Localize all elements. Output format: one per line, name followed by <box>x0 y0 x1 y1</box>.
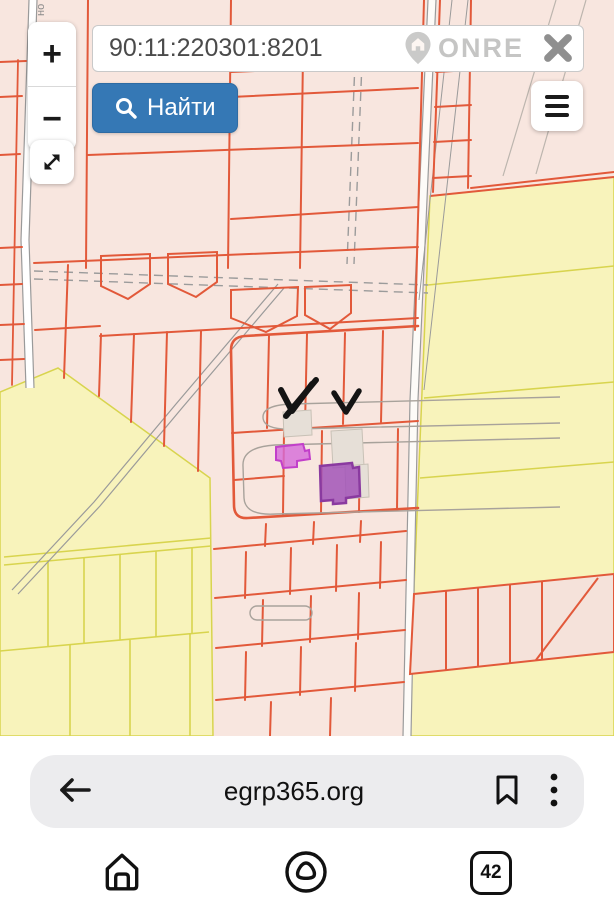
home-button[interactable] <box>102 851 142 896</box>
cadastral-search-input[interactable] <box>92 25 584 72</box>
street-label: но <box>35 4 47 16</box>
close-icon <box>542 29 574 67</box>
back-arrow-icon <box>56 775 94 805</box>
back-button[interactable] <box>56 775 94 808</box>
browser-logo-button[interactable] <box>283 849 329 898</box>
search-icon <box>115 97 137 119</box>
find-button[interactable]: Найти <box>92 83 238 133</box>
find-button-label: Найти <box>147 94 215 122</box>
map-viewport[interactable]: но + − ONRE <box>0 0 614 736</box>
bookmark-button[interactable] <box>494 774 520 809</box>
browser-toolbar: egrp365.org <box>0 736 614 842</box>
kebab-menu-icon <box>550 773 558 807</box>
hamburger-icon <box>545 95 569 99</box>
home-icon <box>102 851 142 893</box>
overflow-menu-button[interactable] <box>550 773 558 810</box>
clear-search-button[interactable] <box>536 26 580 70</box>
expand-arrows-icon <box>39 149 65 175</box>
highlighted-building-primary[interactable] <box>320 463 360 504</box>
phone-screen: но + − ONRE <box>0 0 614 910</box>
map-menu-button[interactable] <box>531 81 583 131</box>
tab-counter: 42 <box>470 851 512 895</box>
browser-bottom-nav: 42 <box>0 842 614 910</box>
zoom-control: + − <box>28 22 76 151</box>
bookmark-icon <box>494 774 520 806</box>
yandex-browser-icon <box>283 849 329 895</box>
url-bar[interactable]: egrp365.org <box>30 755 584 828</box>
fullscreen-button[interactable] <box>30 140 74 184</box>
url-bar-actions <box>494 773 558 810</box>
url-text[interactable]: egrp365.org <box>94 776 494 807</box>
tabs-button[interactable]: 42 <box>470 851 512 895</box>
zoom-in-button[interactable]: + <box>28 22 76 86</box>
